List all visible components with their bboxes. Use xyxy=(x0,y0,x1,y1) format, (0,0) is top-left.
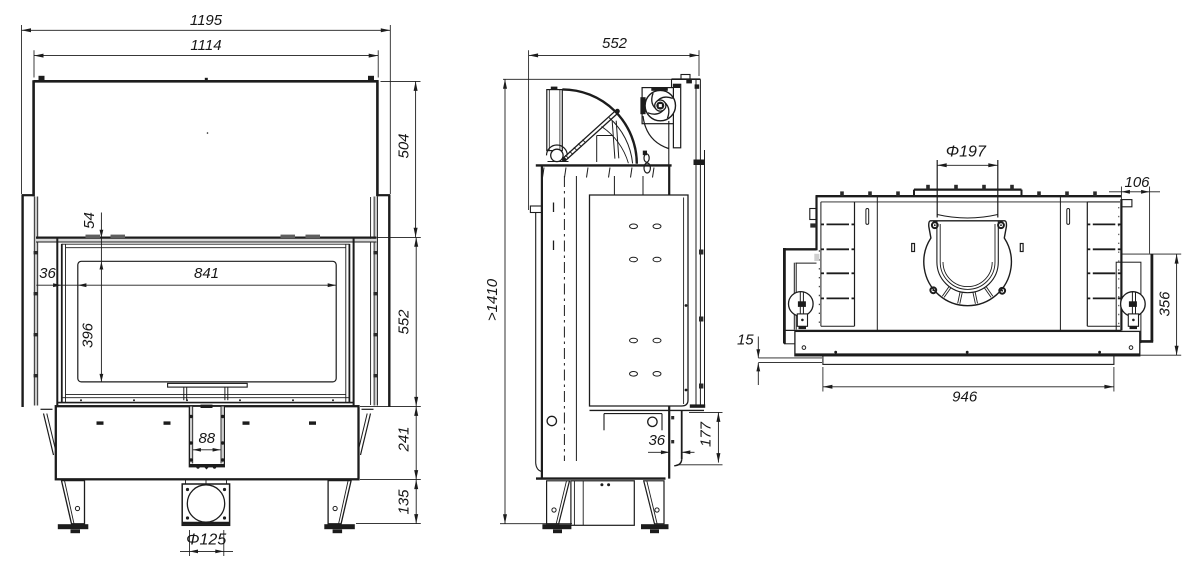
svg-text:1114: 1114 xyxy=(190,37,221,54)
svg-text:88: 88 xyxy=(198,430,215,447)
svg-text:552: 552 xyxy=(602,35,628,52)
svg-text:356: 356 xyxy=(1156,291,1173,317)
svg-text:36: 36 xyxy=(648,432,665,449)
svg-text:552: 552 xyxy=(395,309,412,335)
svg-text:>1410: >1410 xyxy=(484,278,501,321)
svg-text:177: 177 xyxy=(697,421,714,447)
svg-text:241: 241 xyxy=(395,426,412,452)
svg-text:Φ125: Φ125 xyxy=(186,532,226,549)
svg-text:106: 106 xyxy=(1124,174,1150,191)
svg-text:946: 946 xyxy=(952,388,978,405)
svg-text:504: 504 xyxy=(395,133,412,158)
svg-text:36: 36 xyxy=(39,265,56,282)
svg-text:841: 841 xyxy=(194,265,219,282)
svg-text:1195: 1195 xyxy=(190,12,223,29)
svg-text:135: 135 xyxy=(395,489,412,515)
svg-text:54: 54 xyxy=(81,212,98,229)
svg-text:396: 396 xyxy=(79,322,96,348)
svg-text:Φ197: Φ197 xyxy=(946,144,987,161)
svg-text:15: 15 xyxy=(737,331,754,348)
